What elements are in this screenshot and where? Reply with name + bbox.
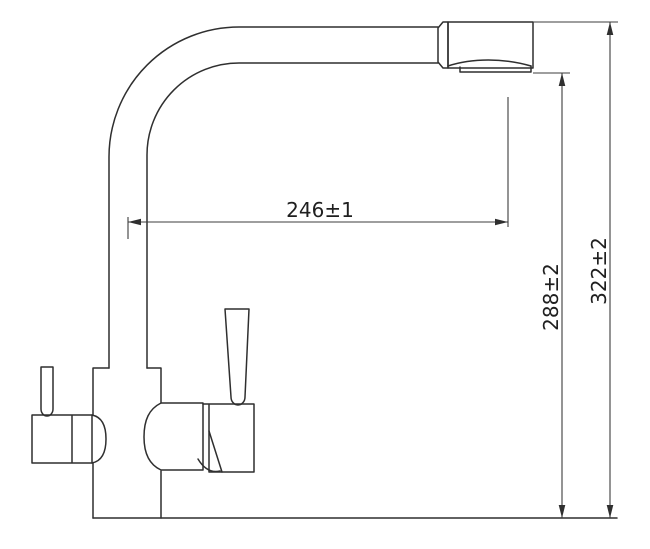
arrow-overall-height-top: [607, 22, 614, 35]
arrow-outlet-height-bottom: [559, 505, 566, 518]
left-valve-dome: [92, 415, 106, 463]
spout-pipe-outer-curve: [109, 27, 438, 368]
body-column: [93, 368, 161, 518]
dim-outlet-height-label: 288±2: [539, 263, 563, 331]
spout-nozzle-block: [448, 22, 533, 68]
drawing-canvas: 246±1 288±2 322±2: [0, 0, 650, 549]
right-handle-lever: [225, 309, 249, 405]
faucet-technical-drawing: 246±1 288±2 322±2: [0, 0, 650, 549]
arrow-overall-height-bottom: [607, 505, 614, 518]
dim-reach-label: 246±1: [286, 198, 354, 222]
arrow-reach-right: [495, 219, 508, 226]
dim-overall-height-label: 322±2: [587, 237, 611, 305]
arrow-outlet-height-top: [559, 73, 566, 86]
aerator-lip: [460, 66, 531, 72]
faucet-outline: [32, 22, 617, 518]
aerator-curve: [448, 60, 531, 66]
right-valve-inner-detail: [198, 431, 222, 472]
spout-collar: [438, 22, 448, 68]
left-valve-body: [32, 415, 92, 463]
right-valve-connector: [144, 403, 203, 470]
arrow-reach-left: [128, 219, 141, 226]
left-handle-lever: [41, 367, 53, 416]
